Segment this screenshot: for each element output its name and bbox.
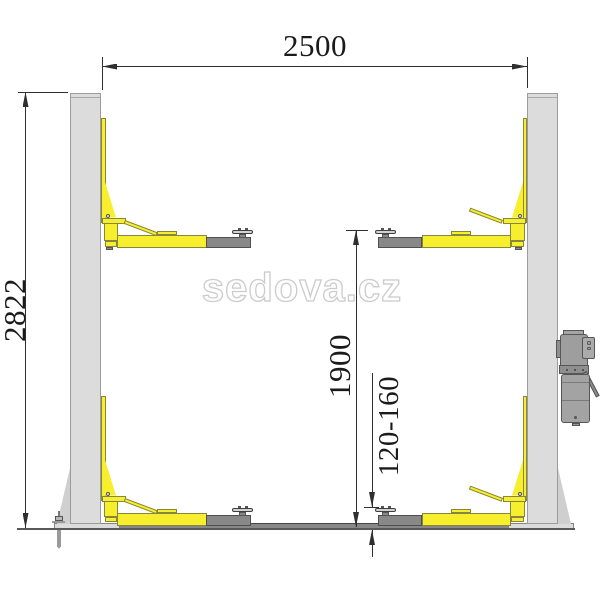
arm-brace-lower-right bbox=[469, 485, 503, 501]
tank-bottom-nub bbox=[572, 423, 580, 426]
slide-wedge-upper-right bbox=[512, 182, 523, 218]
slide-wedge-lower-right bbox=[512, 460, 523, 496]
carriage-lower-block-lower-right bbox=[511, 517, 524, 522]
pad-stem-lower-left bbox=[239, 512, 246, 516]
carriage-lower-block-lower-left bbox=[105, 517, 118, 522]
carriage-bolt-icon bbox=[518, 214, 522, 218]
arm-stop-tab-upper-right bbox=[451, 231, 471, 235]
tank-seam-line bbox=[562, 400, 589, 401]
arm-brace-upper-left bbox=[124, 220, 158, 236]
slide-strip-upper-right bbox=[523, 118, 528, 223]
slide-strip-upper-left bbox=[101, 118, 106, 223]
carriage-lower-left bbox=[104, 501, 119, 517]
dim-arrow-down-icon bbox=[369, 492, 375, 507]
arm-extension-lower-left bbox=[206, 515, 251, 526]
carriage-upper-right bbox=[510, 223, 525, 241]
flange-bolt-icon bbox=[574, 369, 577, 372]
arm-extension-upper-left bbox=[206, 237, 251, 248]
dim-width-ext-line-right bbox=[527, 57, 528, 88]
carriage-upper-left bbox=[104, 223, 119, 241]
dim-arrow-left-icon bbox=[102, 64, 117, 70]
dim-lift-height-label: 1900 bbox=[323, 320, 357, 412]
arm-brace-upper-right bbox=[469, 207, 503, 223]
arm-stop-tab-upper-left bbox=[157, 231, 177, 235]
column-gusset-right bbox=[558, 468, 571, 524]
anchor-bolt-tip bbox=[57, 546, 61, 549]
dim-arrow-up-icon bbox=[23, 92, 29, 107]
anchor-bolt-shaft bbox=[57, 530, 61, 547]
carriage-pin-icon bbox=[515, 247, 522, 250]
dim-lift-tick-top bbox=[346, 230, 368, 231]
flange-bolt-icon bbox=[582, 369, 585, 372]
arm-stop-tab-lower-right bbox=[451, 509, 471, 513]
carriage-lower-right bbox=[510, 501, 525, 517]
arm-extension-lower-right bbox=[378, 515, 423, 526]
lift-arm-upper-right bbox=[422, 235, 512, 249]
pad-stem-upper-left bbox=[239, 234, 246, 238]
anchor-bolt-washer bbox=[52, 521, 65, 523]
carriage-pin-icon bbox=[106, 247, 113, 250]
dim-width-line bbox=[102, 66, 527, 67]
dim-width-ext-line-left bbox=[102, 57, 103, 90]
column-right bbox=[527, 93, 558, 524]
dim-arrow-right-icon bbox=[512, 64, 527, 70]
arm-stop-tab-lower-left bbox=[157, 509, 177, 513]
pad-stem-upper-right bbox=[382, 234, 389, 238]
carriage-bolt-icon bbox=[106, 492, 110, 496]
dim-arrow-down-icon bbox=[23, 513, 29, 528]
column-left-cap-line bbox=[71, 97, 100, 98]
column-left bbox=[70, 93, 101, 524]
column-right-cap-line bbox=[528, 97, 557, 98]
dim-pad-tick bbox=[364, 507, 379, 508]
pad-stem-lower-right bbox=[382, 512, 389, 516]
carriage-bolt-icon bbox=[106, 214, 110, 218]
floor-line bbox=[17, 528, 575, 530]
arm-brace-lower-left bbox=[124, 498, 158, 514]
tank-seam-line bbox=[562, 382, 589, 383]
slide-strip-lower-left bbox=[101, 396, 106, 501]
junction-box-hole-icon bbox=[587, 341, 591, 345]
flange-bolt-icon bbox=[566, 369, 569, 372]
dim-arrow-up-icon bbox=[353, 230, 359, 245]
slide-wedge-upper-left bbox=[105, 182, 116, 218]
lift-diagram: sedova.cz 2500 2822 1900 120-160 bbox=[0, 0, 600, 600]
lift-arm-lower-right bbox=[422, 513, 512, 527]
dim-pad-height-label: 120-160 bbox=[372, 366, 406, 486]
dim-width-label: 2500 bbox=[269, 29, 361, 63]
dim-arrow-up-icon bbox=[369, 530, 375, 545]
carriage-bolt-icon bbox=[518, 492, 522, 496]
lift-arm-lower-left bbox=[117, 513, 207, 527]
slide-strip-lower-right bbox=[523, 396, 528, 501]
dim-height-label: 2822 bbox=[0, 264, 32, 356]
arm-extension-upper-right bbox=[378, 237, 423, 248]
tank-drain-dot bbox=[574, 416, 577, 419]
junction-box-hole-icon bbox=[587, 347, 591, 351]
watermark: sedova.cz bbox=[152, 262, 452, 314]
lift-arm-upper-left bbox=[117, 235, 207, 249]
slide-wedge-lower-left bbox=[105, 460, 116, 496]
